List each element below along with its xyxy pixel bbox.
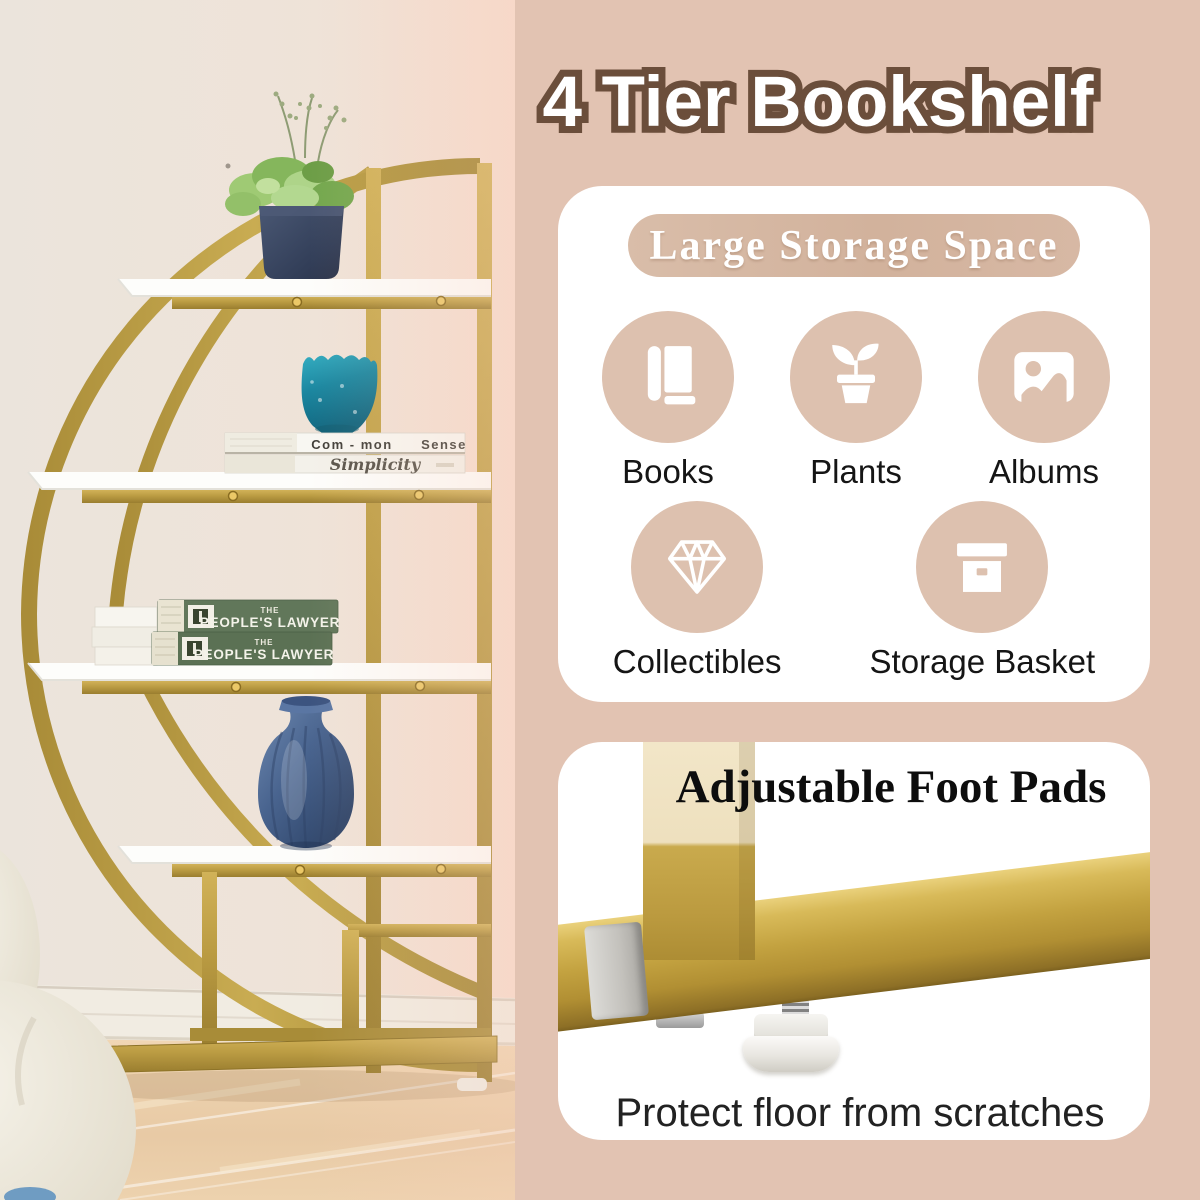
plant-icon xyxy=(790,311,922,443)
footpad-title: Adjustable Foot Pads xyxy=(558,760,1150,814)
feature-row-2: Collectibles Storage Basket xyxy=(558,501,1150,681)
feature-label: Plants xyxy=(810,453,902,491)
storage-card: Large Storage Space Books xyxy=(558,186,1150,702)
feature-storage-basket: Storage Basket xyxy=(870,501,1096,681)
bookshelf-photo-svg: Com - mon Sense Simplicity xyxy=(0,0,515,1200)
album-icon xyxy=(978,311,1110,443)
bookshelf-photo: Com - mon Sense Simplicity xyxy=(0,0,515,1200)
feature-books: Books xyxy=(602,311,734,491)
feature-collectibles: Collectibles xyxy=(613,501,782,681)
feature-row-1: Books Plants xyxy=(558,311,1150,491)
feature-plants: Plants xyxy=(790,311,922,491)
footpad-card: Adjustable Foot Pads Protect floor from … xyxy=(558,742,1150,1140)
diamond-icon xyxy=(631,501,763,633)
page-title-text: 4 Tier Bookshelf xyxy=(515,64,1121,142)
light-overlay xyxy=(0,0,515,1200)
info-panel: 4 Tier Bookshelf 4 Tier Bookshelf Large … xyxy=(515,0,1200,1200)
foot-pad xyxy=(743,1014,839,1072)
storage-box-icon xyxy=(916,501,1048,633)
end-cap xyxy=(584,922,649,1021)
page-title: 4 Tier Bookshelf 4 Tier Bookshelf xyxy=(515,64,1121,142)
feature-label: Albums xyxy=(989,453,1099,491)
feature-label: Storage Basket xyxy=(870,643,1096,681)
feature-label: Collectibles xyxy=(613,643,782,681)
feature-albums: Albums xyxy=(978,311,1110,491)
book-icon xyxy=(602,311,734,443)
footpad-caption: Protect floor from scratches xyxy=(558,1091,1150,1136)
feature-label: Books xyxy=(622,453,714,491)
product-infographic: Com - mon Sense Simplicity xyxy=(0,0,1200,1200)
storage-header-pill: Large Storage Space xyxy=(628,214,1080,277)
